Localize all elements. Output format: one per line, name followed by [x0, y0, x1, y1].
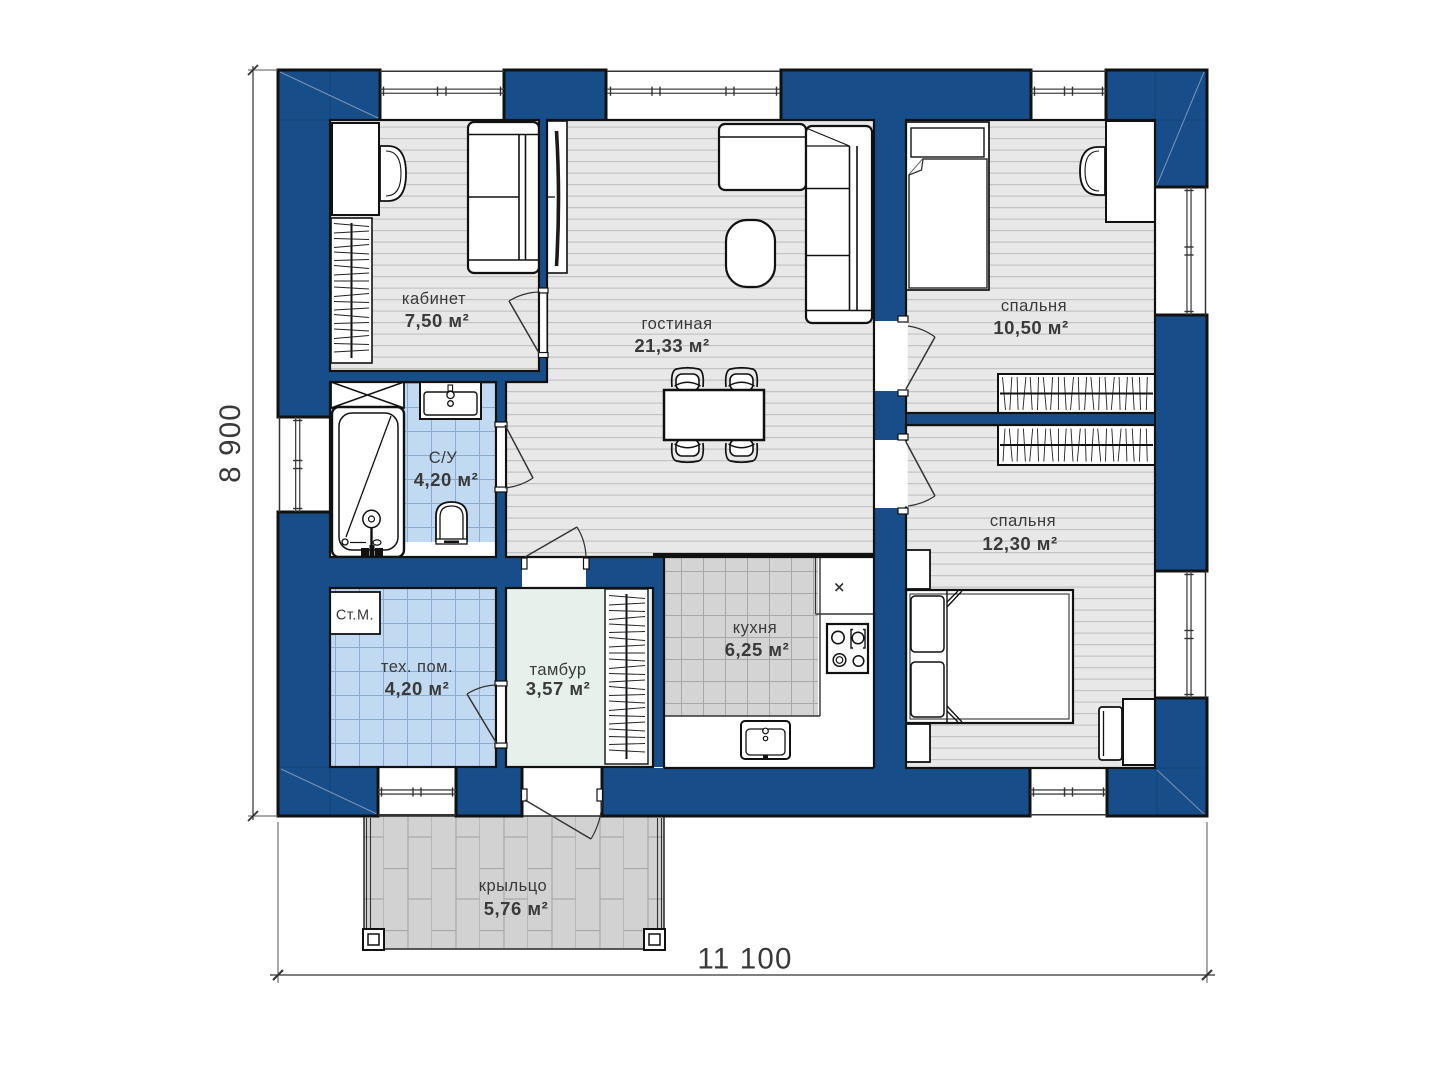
svg-text:4,20 м²: 4,20 м² [385, 678, 450, 699]
svg-text:10,50 м²: 10,50 м² [993, 317, 1068, 338]
svg-text:тех. пом.: тех. пом. [381, 658, 453, 676]
svg-text:крыльцо: крыльцо [479, 877, 547, 895]
svg-text:7,50 м²: 7,50 м² [405, 310, 470, 331]
svg-text:5,76 м²: 5,76 м² [484, 898, 549, 919]
svg-text:тамбур: тамбур [529, 661, 586, 679]
svg-text:4,20 м²: 4,20 м² [414, 469, 479, 490]
svg-text:Ст.М.: Ст.М. [336, 608, 374, 624]
svg-text:6,25 м²: 6,25 м² [725, 639, 790, 660]
svg-text:кухня: кухня [733, 619, 777, 637]
svg-text:11 100: 11 100 [697, 943, 792, 976]
svg-text:кабинет: кабинет [402, 290, 466, 308]
svg-text:спальня: спальня [990, 512, 1056, 530]
svg-text:спальня: спальня [1001, 297, 1067, 315]
svg-text:21,33 м²: 21,33 м² [634, 335, 709, 356]
svg-text:12,30 м²: 12,30 м² [982, 533, 1057, 554]
svg-text:8 900: 8 900 [214, 403, 247, 483]
svg-text:С/У: С/У [429, 449, 458, 467]
svg-text:гостиная: гостиная [641, 315, 712, 333]
svg-text:3,57 м²: 3,57 м² [526, 678, 591, 699]
